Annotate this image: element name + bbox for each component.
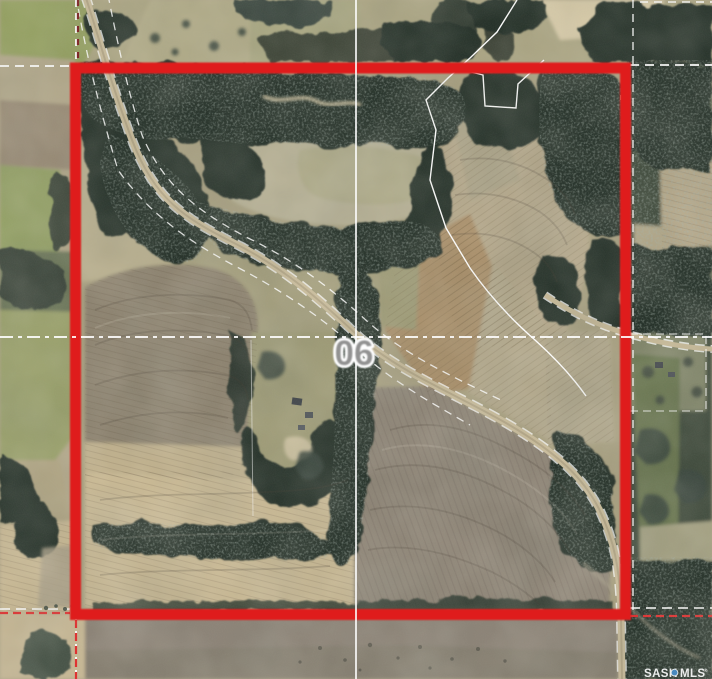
svg-text:06: 06: [335, 334, 374, 373]
svg-text:MLS: MLS: [680, 668, 705, 679]
